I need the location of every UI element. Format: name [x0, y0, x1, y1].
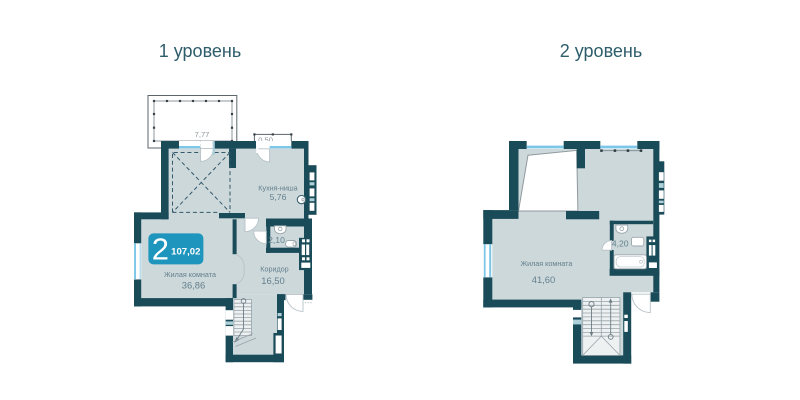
- svg-text:1 уровень: 1 уровень: [159, 41, 242, 61]
- svg-text:36,86: 36,86: [182, 280, 205, 291]
- svg-text:Жилая комната: Жилая комната: [520, 259, 572, 268]
- svg-text:41,60: 41,60: [532, 274, 555, 285]
- svg-text:107,02: 107,02: [171, 247, 200, 258]
- svg-text:Жилая комната: Жилая комната: [164, 270, 216, 279]
- svg-text:Коридор: Коридор: [260, 265, 288, 274]
- svg-text:4,20: 4,20: [612, 238, 629, 248]
- svg-text:2 уровень: 2 уровень: [560, 41, 643, 61]
- svg-text:2,10: 2,10: [268, 235, 285, 245]
- svg-text:7,77: 7,77: [195, 130, 210, 139]
- svg-text:16,50: 16,50: [261, 275, 284, 286]
- svg-text:5,76: 5,76: [270, 192, 287, 202]
- svg-text:2: 2: [152, 232, 169, 267]
